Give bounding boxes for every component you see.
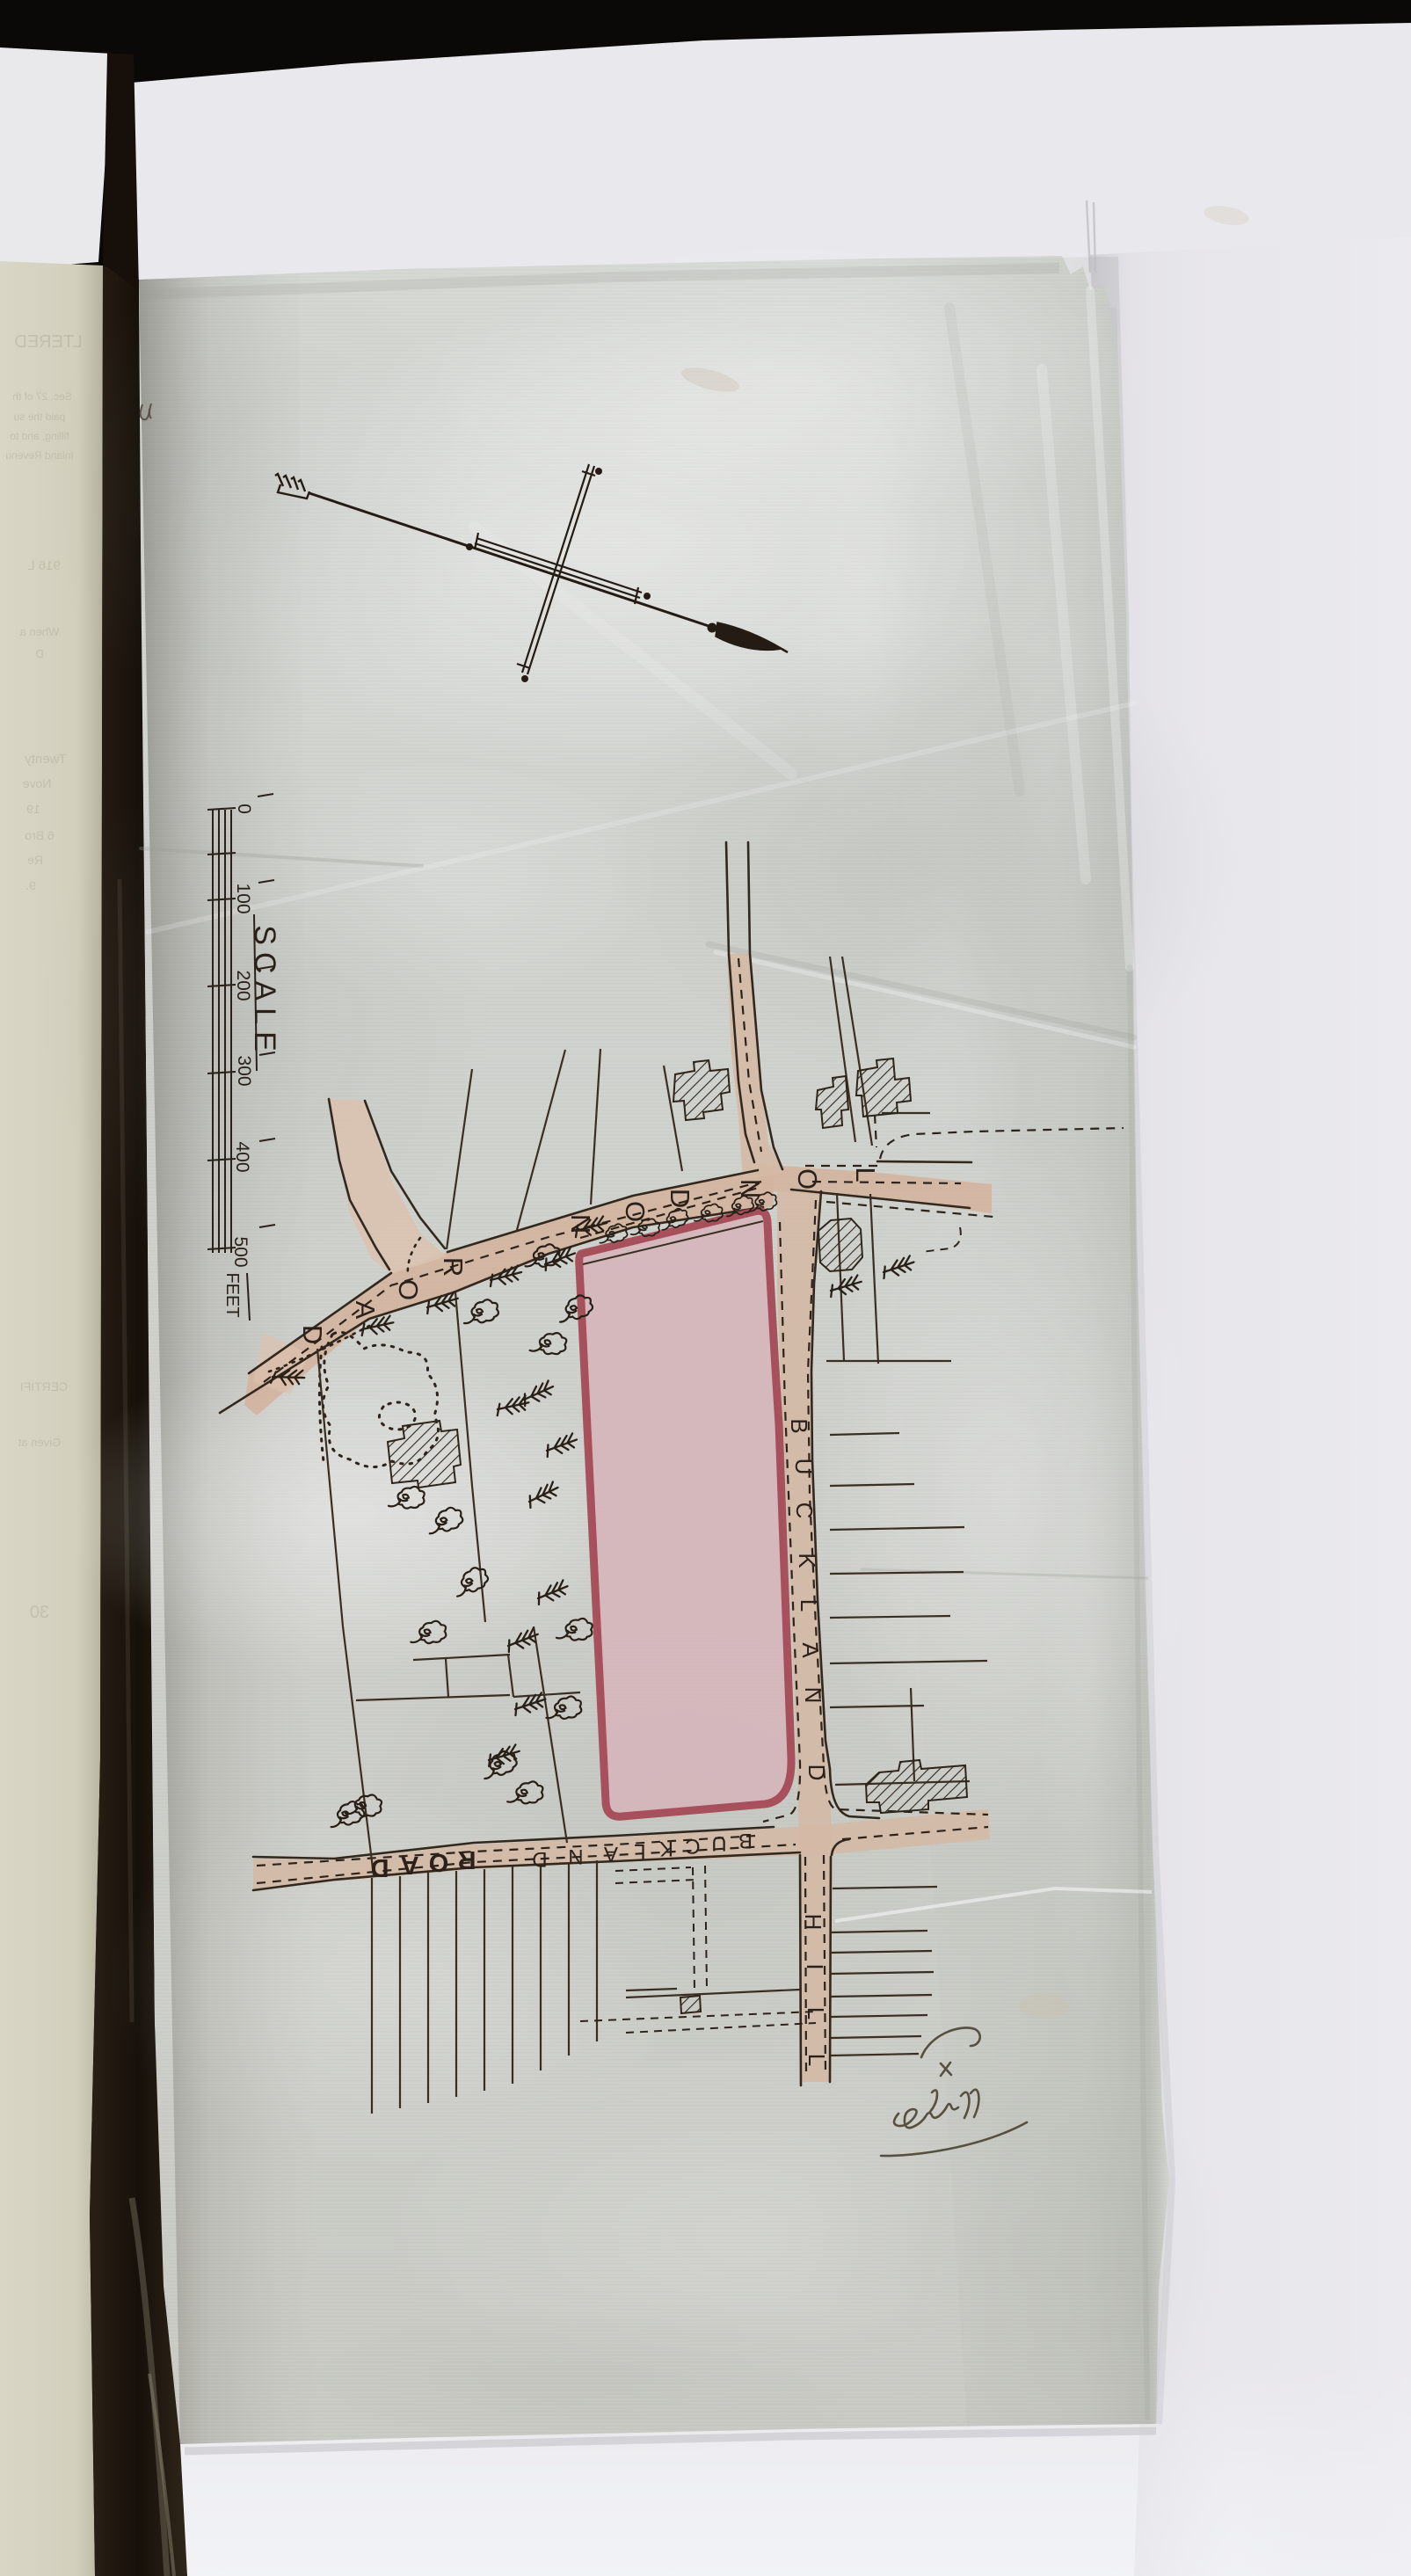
svg-text:L: L — [796, 1599, 822, 1612]
svg-text:9.: 9. — [25, 878, 36, 892]
svg-text:D: D — [532, 1847, 547, 1871]
svg-text:O: O — [393, 1279, 424, 1300]
svg-text:R: R — [438, 1257, 469, 1277]
svg-text:I: I — [802, 1963, 828, 1969]
svg-text:B: B — [786, 1418, 812, 1433]
svg-text:R: R — [457, 1845, 476, 1874]
svg-text:D: D — [297, 1325, 328, 1344]
svg-text:100: 100 — [233, 883, 253, 913]
svg-text:L: L — [804, 2054, 830, 2066]
svg-text:L: L — [803, 2007, 829, 2019]
svg-text:FEET: FEET — [222, 1272, 242, 1317]
svg-text:A: A — [350, 1301, 381, 1320]
svg-text:LTERED: LTERED — [14, 332, 82, 352]
svg-text:D: D — [665, 1189, 695, 1208]
svg-text:D: D — [371, 1853, 389, 1881]
svg-text:L: L — [634, 1839, 645, 1863]
svg-text:U: U — [711, 1831, 726, 1855]
svg-text:C: C — [791, 1503, 818, 1519]
svg-text:D: D — [35, 647, 43, 660]
svg-text:SCALE: SCALE — [248, 925, 281, 1059]
svg-text:H: H — [800, 1914, 826, 1931]
svg-text:6 Bro: 6 Bro — [25, 828, 55, 842]
svg-text:Given at: Given at — [18, 1436, 61, 1449]
svg-text:Twenty: Twenty — [25, 752, 67, 767]
svg-text:N: N — [568, 1845, 583, 1868]
svg-text:K: K — [794, 1553, 820, 1568]
svg-text:A: A — [797, 1642, 824, 1658]
svg-text:B: B — [738, 1829, 753, 1852]
svg-text:L: L — [850, 1167, 881, 1182]
svg-text:400: 400 — [232, 1141, 252, 1172]
svg-text:O: O — [620, 1201, 651, 1222]
svg-text:When a: When a — [19, 625, 60, 638]
svg-text:A: A — [604, 1842, 618, 1866]
svg-text:30: 30 — [30, 1603, 49, 1622]
svg-text:N: N — [735, 1179, 766, 1198]
svg-text:N: N — [565, 1214, 596, 1233]
svg-text:0: 0 — [234, 804, 254, 814]
svg-text:C: C — [685, 1834, 700, 1858]
svg-text:O: O — [429, 1848, 449, 1876]
svg-text:K: K — [659, 1837, 673, 1860]
svg-text:CERTIFI: CERTIFI — [20, 1379, 68, 1394]
svg-text:D: D — [804, 1765, 830, 1781]
svg-text:N: N — [800, 1687, 826, 1704]
svg-text:Re: Re — [27, 853, 43, 867]
svg-text:A: A — [400, 1851, 418, 1879]
svg-text:U: U — [790, 1459, 817, 1475]
svg-text:19: 19 — [26, 802, 40, 816]
svg-text:500: 500 — [230, 1236, 251, 1267]
svg-text:Nove: Nove — [22, 776, 51, 790]
svg-text:300: 300 — [234, 1055, 254, 1086]
svg-text:O: O — [792, 1168, 823, 1190]
